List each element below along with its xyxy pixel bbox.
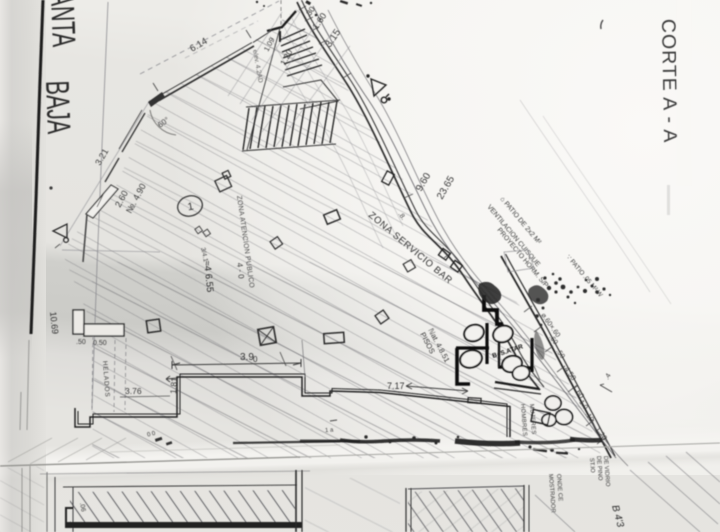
svg-text:PLANTA: PLANTA bbox=[43, 0, 83, 48]
svg-text:7.17: 7.17 bbox=[387, 381, 405, 391]
svg-text:3.76: 3.76 bbox=[125, 386, 142, 396]
svg-text:4 - 0: 4 - 0 bbox=[235, 262, 246, 279]
svg-text:ST.IO: ST.IO bbox=[588, 458, 595, 474]
svg-text:.50: .50 bbox=[76, 339, 86, 346]
svg-text:0.50: 0.50 bbox=[93, 340, 107, 347]
svg-text:0: 0 bbox=[253, 355, 258, 364]
svg-text:1 a: 1 a bbox=[325, 428, 334, 435]
svg-text:BAJA: BAJA bbox=[39, 80, 78, 135]
